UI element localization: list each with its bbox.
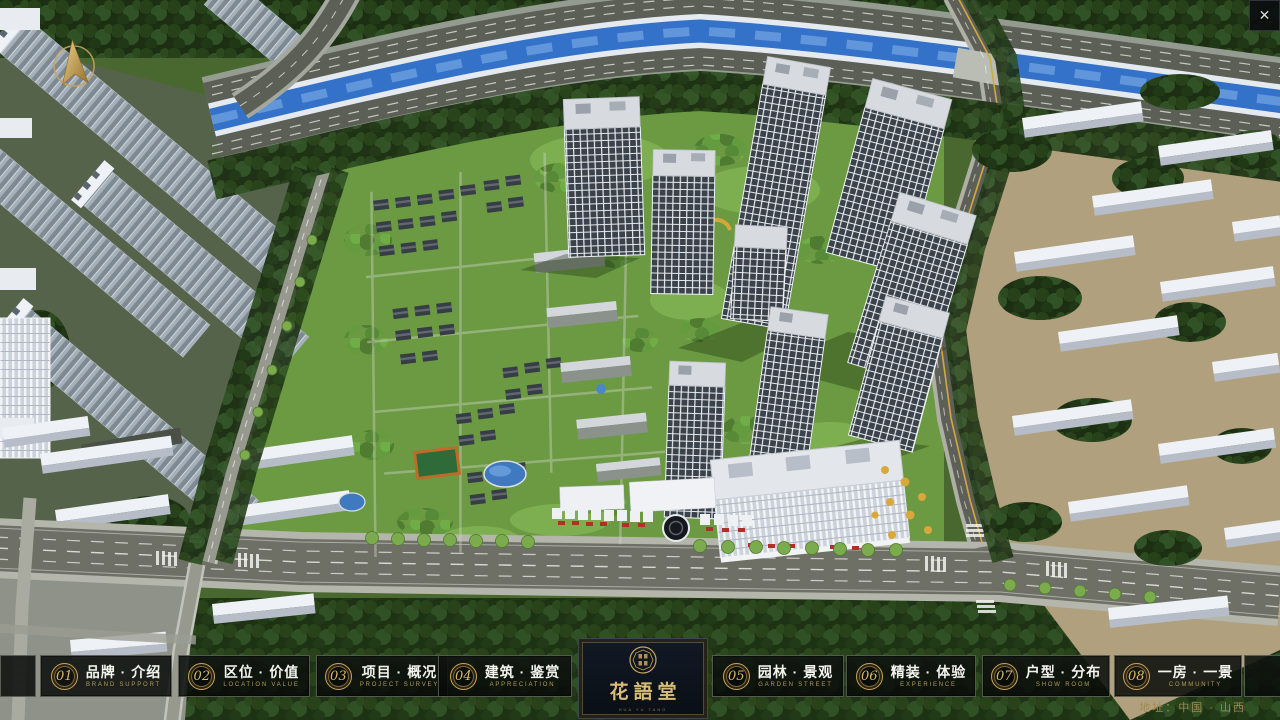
- navbar-right-stub: [1244, 655, 1280, 697]
- nav-label-zh: 项目 · 概况: [362, 665, 437, 679]
- compass-icon: [46, 34, 102, 96]
- masterplan-render[interactable]: [0, 0, 1280, 720]
- nav-item-floorplan[interactable]: 07 户型 · 分布 SHOW ROOM: [982, 655, 1110, 697]
- nav-label-zh: 区位 · 价值: [224, 665, 299, 679]
- nav-item-interior[interactable]: 06 精装 · 体验 EXPERIENCE: [846, 655, 976, 697]
- nav-number-badge: 08: [1123, 663, 1150, 690]
- nav-number-badge: 05: [723, 663, 750, 690]
- brand-title: 花語堂: [604, 677, 681, 704]
- nav-label-en: LOCATION VALUE: [223, 682, 299, 688]
- nav-item-location[interactable]: 02 区位 · 价值 LOCATION VALUE: [178, 655, 310, 697]
- nav-label-en: EXPERIENCE: [900, 682, 957, 688]
- nav-label-zh: 园林 · 景观: [758, 665, 833, 679]
- nav-label-en: GARDEN STREET: [758, 682, 832, 688]
- nav-item-project[interactable]: 03 项目 · 概况 PROJECT SURVEY: [316, 655, 448, 697]
- nav-number-badge: 02: [188, 663, 215, 690]
- nav-number-badge: 06: [856, 663, 883, 690]
- nav-label-zh: 建筑 · 鉴赏: [485, 665, 560, 679]
- nav-item-garden[interactable]: 05 园林 · 景观 GARDEN STREET: [712, 655, 844, 697]
- nav-number-badge: 03: [325, 663, 352, 690]
- nav-number-badge: 01: [51, 663, 78, 690]
- nav-number-badge: 07: [991, 663, 1018, 690]
- nav-label-zh: 品牌 · 介绍: [86, 665, 161, 679]
- nav-label-zh: 一房 · 一景: [1158, 665, 1233, 679]
- app-window: ✕ 01 品牌 · 介绍 BRAND SUPPORT 02 区位 · 价值 LO…: [0, 0, 1280, 720]
- nav-item-architecture[interactable]: 04 建筑 · 鉴赏 APPRECIATION: [438, 655, 572, 697]
- nav-label-zh: 精装 · 体验: [891, 665, 966, 679]
- brand-seal-icon: [628, 645, 658, 675]
- nav-item-brand[interactable]: 01 品牌 · 介绍 BRAND SUPPORT: [40, 655, 172, 697]
- nav-label-zh: 户型 · 分布: [1026, 665, 1101, 679]
- close-button[interactable]: ✕: [1249, 0, 1280, 31]
- nav-item-rooms[interactable]: 08 一房 · 一景 COMMUNITY: [1114, 655, 1242, 697]
- nav-label-en: APPRECIATION: [490, 682, 556, 688]
- brand-tagline: HUA YU TANG: [619, 707, 668, 712]
- nav-number-badge: 04: [450, 663, 477, 690]
- navbar-left-stub: [0, 655, 36, 697]
- nav-label-en: BRAND SUPPORT: [86, 682, 161, 688]
- entrance-logo-circle: [663, 515, 689, 541]
- compass: [46, 34, 102, 96]
- project-address: 地址：中国 · 山西: [1139, 699, 1246, 715]
- nav-label-en: COMMUNITY: [1169, 682, 1222, 688]
- close-icon: ✕: [1259, 7, 1271, 24]
- nav-label-en: SHOW ROOM: [1036, 682, 1091, 688]
- nav-label-en: PROJECT SURVEY: [360, 682, 439, 688]
- brand-logo-panel[interactable]: 花語堂 HUA YU TANG: [578, 638, 708, 719]
